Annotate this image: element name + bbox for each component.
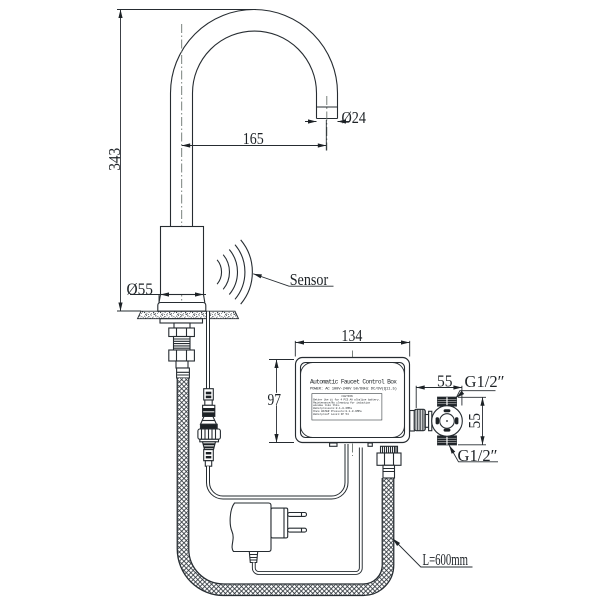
svg-text:97: 97 [268, 390, 282, 409]
svg-text:G1/2″: G1/2″ [458, 446, 498, 465]
svg-text:G1/2″: G1/2″ [465, 372, 505, 391]
svg-text:55: 55 [437, 371, 453, 390]
svg-text:165: 165 [243, 129, 264, 148]
svg-text:L=600mm: L=600mm [423, 550, 469, 569]
svg-text:134: 134 [341, 326, 362, 345]
svg-text:CAUTION: CAUTION [341, 395, 353, 398]
svg-text:Ø55: Ø55 [127, 279, 154, 298]
svg-text:343: 343 [105, 148, 124, 171]
svg-text:Ø24: Ø24 [342, 108, 367, 127]
svg-text:Automatic Faucet Control Box: Automatic Faucet Control Box [310, 379, 397, 386]
svg-text:Once WATER Pressure:0.1-0.9MPa: Once WATER Pressure:0.1-0.9MPa [313, 410, 362, 413]
svg-text:Waterpressure:0.1-0.6MPa: Waterpressure:0.1-0.6MPa [313, 407, 352, 410]
svg-text:Sensor: Sensor [290, 270, 329, 289]
svg-text:POWER: AC 100V-240V 50/60Hz DC: POWER: AC 100V-240V 50/60Hz DC/9V(Q11.5) [310, 386, 397, 391]
svg-text:55: 55 [465, 413, 484, 429]
